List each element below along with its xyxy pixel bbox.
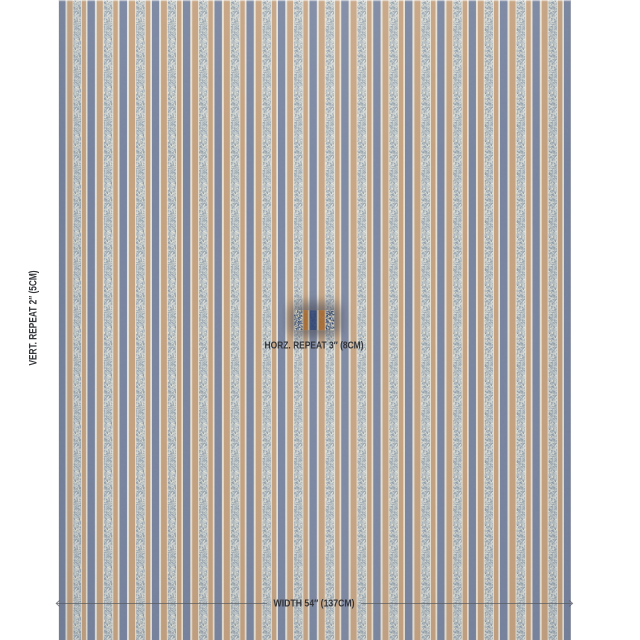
svg-text:WIDTH 54″ (137CM): WIDTH 54″ (137CM) — [274, 599, 355, 610]
svg-text:VERT. REPEAT 2″ (5CM): VERT. REPEAT 2″ (5CM) — [28, 270, 40, 365]
svg-text:HORZ. REPEAT 3″ (8CM): HORZ. REPEAT 3″ (8CM) — [265, 340, 364, 351]
